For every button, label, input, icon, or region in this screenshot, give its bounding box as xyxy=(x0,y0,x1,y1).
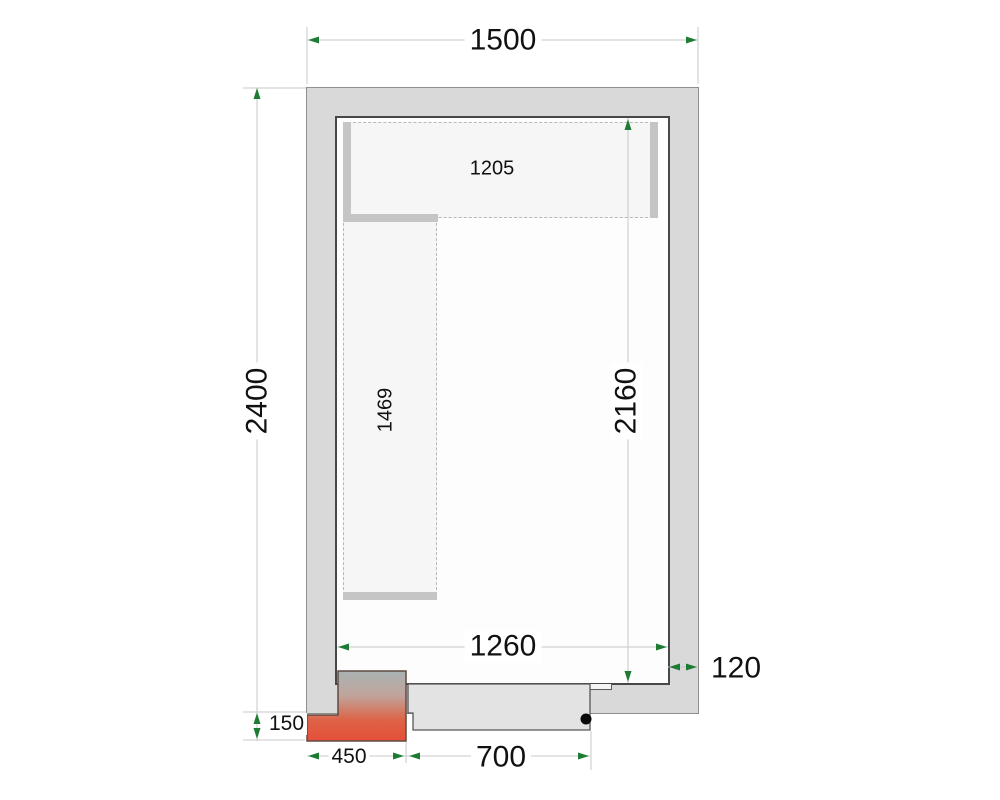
dim-shelf-left: 1469 xyxy=(376,383,397,438)
dim-inner-depth: 2160 xyxy=(610,363,642,440)
dim-shelf-top: 1205 xyxy=(465,159,520,180)
dim-outer-width: 1500 xyxy=(465,24,542,56)
door-hinge-dot xyxy=(581,714,592,725)
floor-plan-canvas: 1500 2400 1205 1469 2160 1260 120 150 45… xyxy=(0,0,1000,800)
dim-inner-width: 1260 xyxy=(465,630,542,662)
dim-wall-thickness: 120 xyxy=(706,652,766,684)
dim-door-width: 700 xyxy=(471,741,531,773)
shelf-left-top-bar xyxy=(343,214,438,222)
shelf-top-right-bar xyxy=(650,122,658,218)
dim-unit-protrusion: 150 xyxy=(266,713,307,735)
shelf-top-left-bar xyxy=(343,122,351,215)
dim-unit-width: 450 xyxy=(328,746,369,768)
dim-outer-depth: 2400 xyxy=(241,363,273,440)
door-opening xyxy=(408,684,590,713)
door-frame-rebate xyxy=(590,684,612,690)
shelf-left-bottom-bar xyxy=(343,592,437,600)
